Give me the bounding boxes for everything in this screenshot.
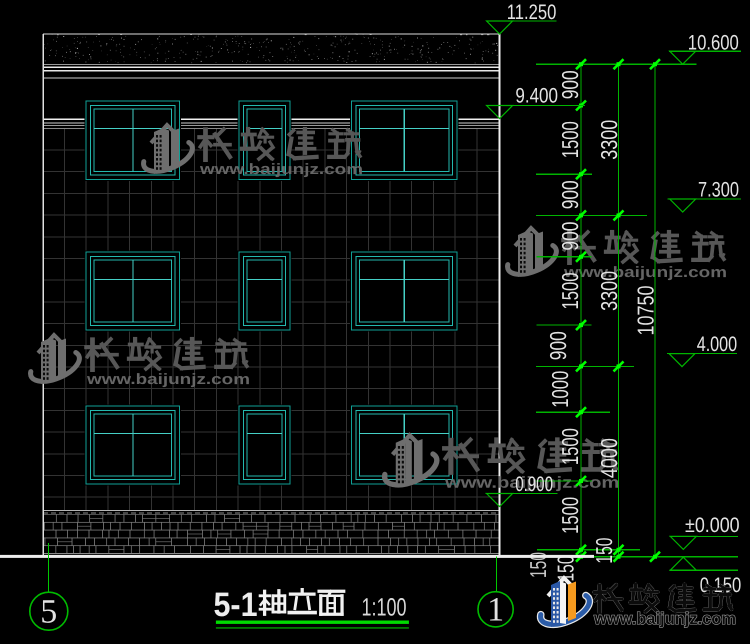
svg-text:900: 900	[545, 331, 571, 360]
svg-text:www.baijunjz.com: www.baijunjz.com	[86, 371, 250, 388]
svg-text:5: 5	[40, 594, 57, 631]
svg-text:7.300: 7.300	[698, 178, 739, 201]
svg-text:1500: 1500	[557, 121, 583, 158]
svg-text:3300: 3300	[596, 271, 622, 311]
svg-text:9.400: 9.400	[515, 85, 558, 108]
svg-text:±0.000: ±0.000	[685, 514, 740, 537]
svg-text:1:100: 1:100	[362, 594, 407, 622]
svg-text:4.000: 4.000	[697, 333, 738, 356]
svg-text:www.baijunjz.com: www.baijunjz.com	[563, 264, 727, 281]
svg-text:1: 1	[487, 592, 504, 629]
svg-text:3300: 3300	[596, 120, 622, 160]
svg-text:10750: 10750	[633, 286, 659, 336]
svg-text:10.600: 10.600	[688, 32, 739, 55]
svg-text:www.baijunjz.com: www.baijunjz.com	[593, 610, 736, 628]
svg-text:900: 900	[557, 222, 583, 251]
svg-text:www.baijunjz.com: www.baijunjz.com	[199, 161, 363, 178]
svg-text:0.900: 0.900	[515, 473, 553, 496]
svg-text:150: 150	[591, 538, 617, 564]
svg-text:1500: 1500	[557, 428, 583, 465]
svg-text:5-1: 5-1	[214, 586, 258, 624]
svg-text:1500: 1500	[557, 273, 583, 310]
svg-text:1000: 1000	[547, 371, 573, 408]
svg-text:900: 900	[557, 180, 583, 209]
svg-text:4000: 4000	[596, 438, 622, 478]
svg-text:900: 900	[557, 70, 583, 99]
svg-text:1500: 1500	[557, 497, 583, 534]
svg-text:11.250: 11.250	[507, 1, 557, 24]
